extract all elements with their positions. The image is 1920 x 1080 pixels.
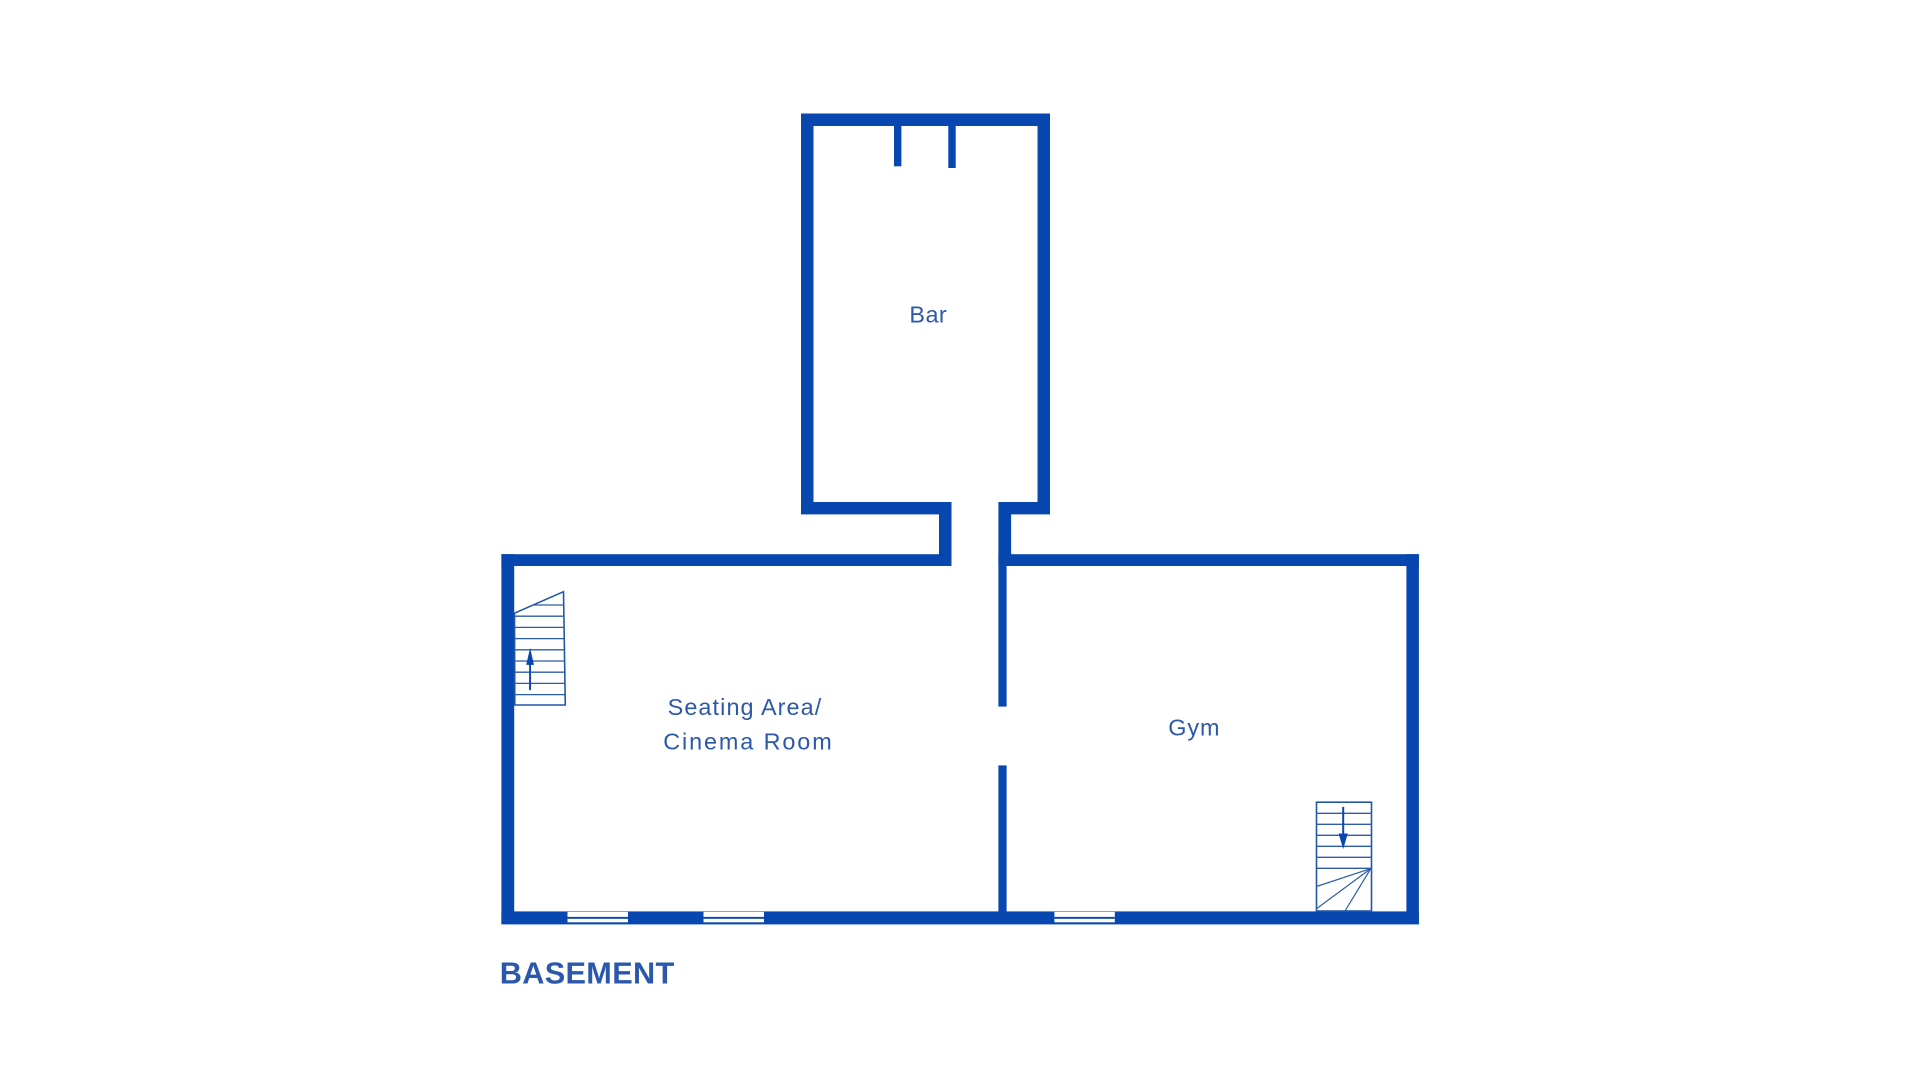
svg-text:Seating Area/: Seating Area/ xyxy=(668,694,823,720)
svg-text:Cinema Room: Cinema Room xyxy=(663,729,833,755)
svg-text:BASEMENT: BASEMENT xyxy=(500,955,675,990)
svg-text:Gym: Gym xyxy=(1168,714,1220,740)
svg-text:Bar: Bar xyxy=(909,301,947,327)
